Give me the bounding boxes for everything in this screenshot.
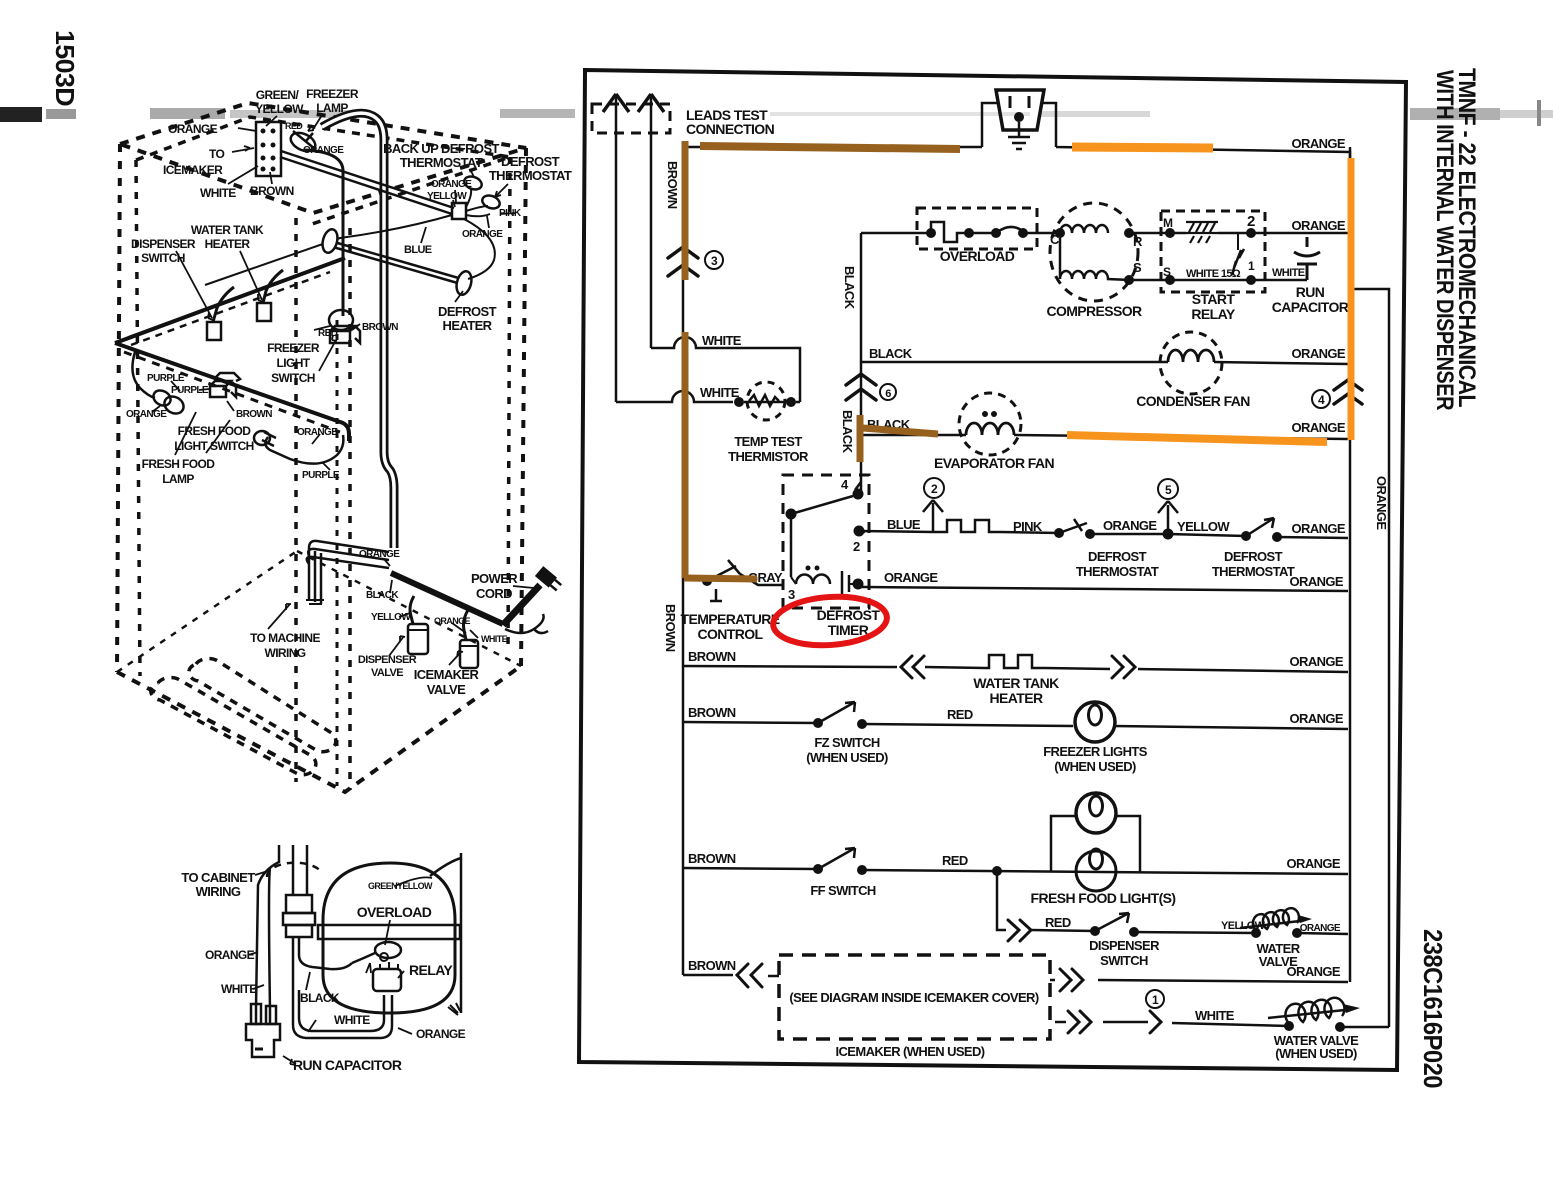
svg-text:CORD: CORD xyxy=(476,586,512,601)
svg-text:HEATER: HEATER xyxy=(443,318,493,333)
svg-text:THERMOSTAT: THERMOSTAT xyxy=(400,155,483,170)
svg-text:3: 3 xyxy=(711,254,718,268)
svg-text:2: 2 xyxy=(931,482,938,496)
svg-text:FF SWITCH: FF SWITCH xyxy=(810,883,876,898)
svg-text:R: R xyxy=(1133,234,1143,249)
svg-text:RUN CAPACITOR: RUN CAPACITOR xyxy=(293,1057,402,1073)
svg-text:ORANGE: ORANGE xyxy=(462,229,503,240)
svg-text:ORANGE: ORANGE xyxy=(126,409,167,420)
svg-text:YELLOW: YELLOW xyxy=(1177,519,1230,534)
svg-text:ORANGE: ORANGE xyxy=(1292,521,1346,536)
svg-text:YELLOW: YELLOW xyxy=(371,612,411,623)
svg-text:ICEMAKER: ICEMAKER xyxy=(163,163,223,177)
svg-text:WHITE: WHITE xyxy=(700,385,740,400)
svg-text:S: S xyxy=(1163,265,1171,279)
svg-text:TEMPERATURE: TEMPERATURE xyxy=(681,611,780,627)
svg-text:ORANGE: ORANGE xyxy=(1290,711,1344,726)
svg-text:DEFROST: DEFROST xyxy=(501,154,560,169)
svg-text:SWITCH: SWITCH xyxy=(1100,953,1148,968)
svg-text:ORANGE: ORANGE xyxy=(1374,476,1389,530)
svg-text:RED: RED xyxy=(942,853,968,868)
svg-text:BLACK: BLACK xyxy=(366,590,399,601)
svg-text:ORANGE: ORANGE xyxy=(1287,964,1341,979)
svg-text:RED: RED xyxy=(1045,915,1071,930)
svg-text:(WHEN USED): (WHEN USED) xyxy=(806,750,888,765)
svg-text:ICEMAKER: ICEMAKER xyxy=(414,667,480,682)
svg-text:WHITE: WHITE xyxy=(200,186,236,200)
svg-text:ORANGE: ORANGE xyxy=(1290,574,1344,589)
svg-text:5: 5 xyxy=(1165,483,1172,497)
svg-text:RED: RED xyxy=(318,328,338,339)
svg-text:FREEZER: FREEZER xyxy=(267,341,320,355)
svg-text:ORANGE: ORANGE xyxy=(416,1027,466,1041)
svg-text:OVERLOAD: OVERLOAD xyxy=(357,904,432,920)
svg-text:CONNECTION: CONNECTION xyxy=(686,121,775,137)
svg-text:ORANGE: ORANGE xyxy=(1292,346,1346,361)
svg-text:THERMOSTAT: THERMOSTAT xyxy=(1212,564,1295,579)
svg-text:CONTROL: CONTROL xyxy=(697,626,763,642)
svg-text:BROWN: BROWN xyxy=(663,604,678,652)
svg-text:YELLOW: YELLOW xyxy=(255,102,304,116)
svg-text:WHITE 15Ω: WHITE 15Ω xyxy=(1186,268,1241,280)
svg-text:ORANGE: ORANGE xyxy=(431,179,472,190)
svg-text:TO CABINET: TO CABINET xyxy=(181,870,255,885)
svg-text:1503D: 1503D xyxy=(50,30,80,106)
svg-text:BACK UP DEFROST: BACK UP DEFROST xyxy=(383,141,499,156)
svg-text:RELAY: RELAY xyxy=(409,962,453,978)
svg-text:VALVE: VALVE xyxy=(427,682,466,697)
svg-text:WHITE: WHITE xyxy=(481,634,508,644)
svg-text:WHITE: WHITE xyxy=(1272,267,1305,279)
svg-text:ORANGE: ORANGE xyxy=(168,122,218,136)
svg-text:FRESH FOOD: FRESH FOOD xyxy=(142,457,216,471)
svg-text:(WHEN USED): (WHEN USED) xyxy=(1054,759,1136,774)
svg-text:ORANGE: ORANGE xyxy=(884,570,938,585)
svg-text:ORANGE: ORANGE xyxy=(1292,218,1346,233)
svg-text:S: S xyxy=(1133,260,1142,275)
svg-text:ORANGE: ORANGE xyxy=(1103,518,1157,533)
svg-text:BROWN: BROWN xyxy=(688,851,736,866)
svg-text:DEFROST: DEFROST xyxy=(1224,549,1283,564)
svg-text:ICEMAKER (WHEN USED): ICEMAKER (WHEN USED) xyxy=(835,1044,984,1059)
svg-text:BROWN: BROWN xyxy=(688,649,736,664)
svg-text:TO MACHINE: TO MACHINE xyxy=(250,631,320,645)
svg-text:THERMOSTAT: THERMOSTAT xyxy=(489,168,572,183)
svg-text:TIMER: TIMER xyxy=(828,622,869,638)
svg-text:FRESH FOOD LIGHT(S): FRESH FOOD LIGHT(S) xyxy=(1031,890,1176,906)
svg-text:ORANGE: ORANGE xyxy=(1292,420,1346,435)
svg-text:WHITE: WHITE xyxy=(1195,1008,1235,1023)
svg-text:BLUE: BLUE xyxy=(887,517,921,532)
svg-text:PURPLE: PURPLE xyxy=(147,373,185,384)
svg-text:WATER TANK: WATER TANK xyxy=(973,675,1059,691)
svg-text:ORANGE: ORANGE xyxy=(205,948,255,962)
svg-text:TO: TO xyxy=(209,147,225,161)
svg-text:LAMP: LAMP xyxy=(162,472,194,486)
svg-text:THERMOSTAT: THERMOSTAT xyxy=(1076,564,1159,579)
svg-text:WHITE: WHITE xyxy=(702,333,742,348)
svg-text:TEMP TEST: TEMP TEST xyxy=(734,434,802,449)
svg-text:WIRING: WIRING xyxy=(264,646,305,660)
svg-text:YELLOW: YELLOW xyxy=(427,191,467,202)
svg-text:2: 2 xyxy=(853,539,860,554)
svg-text:GREENYELLOW: GREENYELLOW xyxy=(368,881,433,891)
svg-text:M: M xyxy=(1163,216,1173,230)
svg-text:OVERLOAD: OVERLOAD xyxy=(940,248,1015,264)
svg-text:BLACK: BLACK xyxy=(300,991,340,1005)
svg-text:RUN: RUN xyxy=(1296,284,1325,300)
svg-text:ORANGE: ORANGE xyxy=(1287,856,1341,871)
svg-text:1: 1 xyxy=(1152,993,1159,1007)
svg-text:FREEZER: FREEZER xyxy=(306,87,359,101)
svg-text:DISPENSER: DISPENSER xyxy=(1089,938,1160,953)
svg-text:COMPRESSOR: COMPRESSOR xyxy=(1046,303,1142,319)
svg-text:FREEZER LIGHTS: FREEZER LIGHTS xyxy=(1043,744,1147,759)
svg-text:PINK: PINK xyxy=(1013,519,1043,534)
svg-text:CAPACITOR: CAPACITOR xyxy=(1272,299,1349,315)
svg-text:BROWN: BROWN xyxy=(250,184,294,198)
svg-text:DEFROST: DEFROST xyxy=(438,304,497,319)
svg-text:SWITCH: SWITCH xyxy=(141,251,185,265)
svg-text:6: 6 xyxy=(885,388,891,400)
svg-text:ORANGE: ORANGE xyxy=(359,549,400,560)
svg-text:DEFROST: DEFROST xyxy=(817,607,881,623)
svg-text:C: C xyxy=(1050,232,1060,247)
svg-text:YELLOW: YELLOW xyxy=(1221,920,1266,932)
svg-text:GREEN/: GREEN/ xyxy=(256,88,300,102)
svg-text:BROWN: BROWN xyxy=(362,322,398,333)
svg-text:RELAY: RELAY xyxy=(1191,306,1235,322)
svg-text:EVAPORATOR FAN: EVAPORATOR FAN xyxy=(934,455,1054,471)
svg-text:FZ SWITCH: FZ SWITCH xyxy=(814,735,880,750)
svg-text:LAMP: LAMP xyxy=(316,101,348,115)
svg-text:VALVE: VALVE xyxy=(371,667,403,679)
svg-text:WIRING: WIRING xyxy=(196,884,241,899)
svg-text:BLACK: BLACK xyxy=(842,266,857,310)
svg-text:THERMISTOR: THERMISTOR xyxy=(728,449,809,464)
svg-text:WHITE: WHITE xyxy=(221,982,257,996)
svg-text:238C1616P020: 238C1616P020 xyxy=(1418,929,1448,1088)
svg-text:4: 4 xyxy=(1318,393,1325,407)
svg-text:SWITCH: SWITCH xyxy=(271,371,315,385)
svg-text:LIGHT: LIGHT xyxy=(277,356,311,370)
svg-text:1: 1 xyxy=(1248,259,1255,273)
svg-text:2: 2 xyxy=(1247,213,1255,230)
svg-text:RED: RED xyxy=(947,707,973,722)
svg-text:BROWN: BROWN xyxy=(665,161,680,209)
svg-text:RED: RED xyxy=(285,121,303,131)
svg-text:WATER TANK: WATER TANK xyxy=(191,223,264,237)
svg-text:HEATER: HEATER xyxy=(990,690,1043,706)
svg-text:DEFROST: DEFROST xyxy=(1088,549,1147,564)
svg-text:BLUE: BLUE xyxy=(404,244,432,256)
svg-text:ORANGE: ORANGE xyxy=(434,616,470,626)
svg-text:BROWN: BROWN xyxy=(688,705,736,720)
svg-text:BROWN: BROWN xyxy=(236,409,272,420)
svg-text:(WHEN USED): (WHEN USED) xyxy=(1275,1046,1357,1061)
svg-text:(SEE DIAGRAM INSIDE ICEMAKER C: (SEE DIAGRAM INSIDE ICEMAKER COVER) xyxy=(789,990,1038,1005)
svg-text:HEATER: HEATER xyxy=(205,237,251,251)
svg-text:WITH INTERNAL WATER DISPENSER: WITH INTERNAL WATER DISPENSER xyxy=(1431,70,1458,410)
svg-text:3: 3 xyxy=(788,587,795,602)
svg-text:WHITE: WHITE xyxy=(334,1013,370,1027)
svg-text:ORANGE: ORANGE xyxy=(1290,654,1344,669)
svg-text:START: START xyxy=(1192,291,1236,307)
svg-text:PURPLE: PURPLE xyxy=(302,470,340,481)
svg-text:ORANGE: ORANGE xyxy=(1292,136,1346,151)
svg-text:CONDENSER FAN: CONDENSER FAN xyxy=(1136,393,1250,409)
svg-text:ORANGE: ORANGE xyxy=(1300,923,1341,934)
svg-text:ORANGE: ORANGE xyxy=(303,145,344,156)
svg-text:POWER: POWER xyxy=(471,571,518,586)
svg-text:BLACK: BLACK xyxy=(869,346,913,361)
svg-text:DISPENSER: DISPENSER xyxy=(131,237,196,251)
svg-text:BROWN: BROWN xyxy=(688,958,736,973)
svg-text:BLACK: BLACK xyxy=(840,410,855,454)
svg-text:DISPENSER: DISPENSER xyxy=(358,654,417,666)
